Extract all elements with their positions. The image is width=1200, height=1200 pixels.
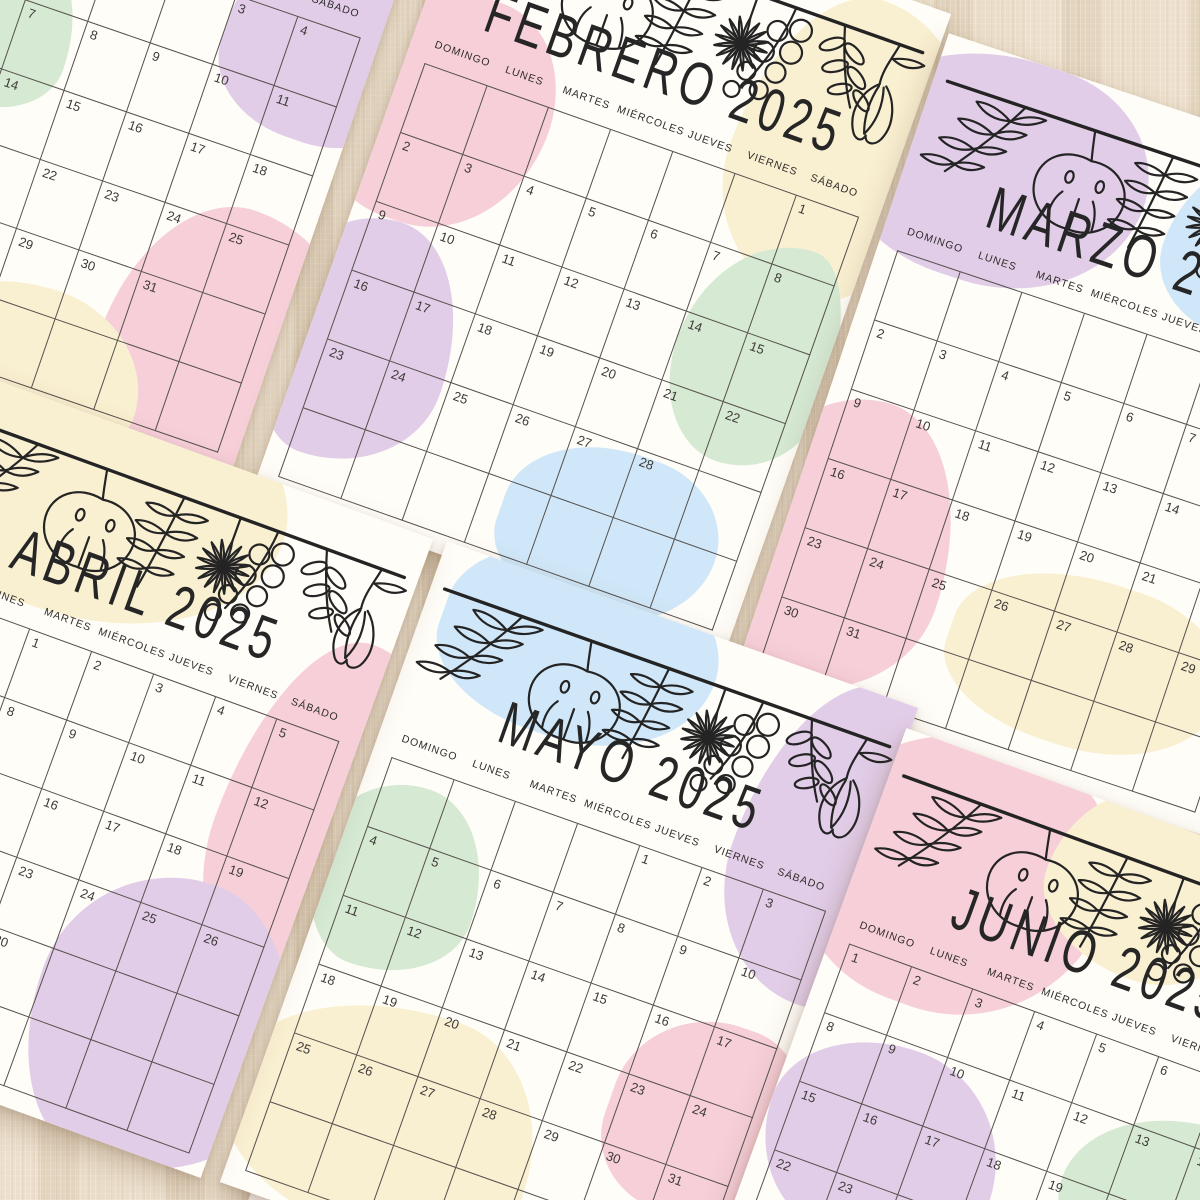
day-number: 30 [0, 931, 10, 950]
day-number: 31 [141, 277, 160, 296]
day-number: 16 [126, 117, 145, 136]
day-number: 4 [367, 832, 379, 849]
day-number: 10 [914, 415, 932, 434]
day-number: 19 [538, 341, 557, 360]
day-number: 13 [1101, 478, 1119, 497]
day-number: 8 [824, 1018, 836, 1035]
day-number: 23 [17, 863, 36, 882]
day-number: 21 [505, 1035, 524, 1054]
day-number: 26 [202, 930, 221, 949]
day-number: 25 [451, 388, 470, 407]
day-number: 29 [1179, 658, 1197, 677]
day-number: 12 [405, 923, 424, 942]
day-number: 26 [513, 410, 532, 429]
day-number: 17 [891, 485, 909, 504]
day-number: 11 [976, 436, 994, 455]
day-number: 21 [1140, 568, 1158, 587]
day-number: 28 [480, 1104, 499, 1123]
day-number: 3 [462, 160, 474, 177]
day-number: 16 [42, 794, 61, 813]
day-number: 18 [476, 319, 495, 338]
day-number: 3 [764, 895, 776, 912]
day-number: 10 [739, 964, 758, 983]
day-number: 13 [624, 294, 643, 313]
day-number: 11 [1010, 1086, 1028, 1105]
day-number: 5 [1096, 1040, 1108, 1057]
day-number: 16 [861, 1109, 880, 1128]
day-number: 4 [298, 22, 310, 39]
day-number: 23 [628, 1079, 647, 1098]
day-number: 10 [212, 70, 231, 89]
day-number: 22 [567, 1057, 586, 1076]
calendar-mockup-scene: ENERO 2025 DOMINGOLUNESMARTESMIÉRCOLESJU… [0, 0, 1200, 1200]
day-number: 1 [849, 950, 861, 967]
day-number: 5 [277, 724, 289, 741]
day-number: 11 [500, 251, 518, 270]
day-number: 4 [1035, 1017, 1047, 1034]
day-number: 19 [227, 862, 246, 881]
day-number: 10 [438, 229, 457, 248]
day-number: 9 [150, 48, 162, 65]
day-number: 12 [562, 273, 581, 292]
day-number: 16 [828, 464, 846, 483]
day-number: 11 [274, 91, 292, 110]
day-number: 9 [376, 207, 388, 224]
day-number: 25 [294, 1038, 313, 1057]
day-number: 13 [1133, 1131, 1152, 1150]
day-number: 26 [356, 1060, 375, 1079]
day-number: 10 [948, 1063, 967, 1082]
day-number: 18 [165, 839, 184, 858]
day-number: 1 [797, 201, 809, 218]
day-number: 17 [103, 817, 122, 836]
day-number: 1 [30, 635, 42, 652]
day-number: 14 [1163, 499, 1181, 518]
day-number: 24 [389, 366, 408, 385]
day-number: 2 [875, 325, 887, 342]
day-number: 17 [923, 1132, 942, 1151]
day-number: 15 [64, 96, 83, 115]
day-number: 11 [190, 771, 208, 790]
day-number: 25 [227, 229, 246, 248]
day-number: 27 [418, 1082, 437, 1101]
day-number: 30 [604, 1148, 623, 1167]
day-number: 8 [772, 270, 784, 287]
day-number: 3 [937, 346, 949, 363]
day-number: 14 [529, 967, 548, 986]
day-number: 15 [591, 988, 610, 1007]
day-number: 7 [1186, 430, 1198, 447]
day-number: 21 [661, 385, 680, 404]
day-number: 23 [327, 344, 346, 363]
day-number: 1 [640, 851, 652, 868]
day-number: 19 [1046, 1177, 1065, 1196]
day-number: 20 [600, 363, 619, 382]
day-number: 6 [1124, 409, 1136, 426]
day-number: 15 [748, 338, 767, 357]
day-number: 3 [153, 680, 165, 697]
day-number: 20 [1078, 547, 1096, 566]
day-number: 30 [782, 602, 800, 621]
day-number: 18 [251, 160, 270, 179]
day-number: 7 [553, 898, 565, 915]
day-number: 9 [67, 726, 79, 743]
day-number: 9 [852, 395, 864, 412]
day-number: 19 [1015, 526, 1033, 545]
day-number: 25 [140, 908, 159, 927]
day-number: 24 [868, 554, 886, 573]
day-number: 25 [930, 575, 948, 594]
day-number: 31 [666, 1170, 685, 1189]
day-number: 4 [999, 367, 1011, 384]
day-number: 23 [805, 533, 823, 552]
day-number: 15 [799, 1087, 818, 1106]
day-number: 16 [653, 1010, 672, 1029]
day-number: 22 [40, 165, 59, 184]
day-number: 10 [128, 748, 147, 767]
day-number: 8 [88, 27, 100, 44]
day-number: 28 [1117, 637, 1135, 656]
day-number: 22 [774, 1155, 793, 1174]
day-number: 29 [17, 234, 36, 253]
day-number: 24 [78, 885, 97, 904]
day-number: 6 [1158, 1062, 1170, 1079]
day-number: 18 [985, 1154, 1004, 1173]
day-number: 2 [92, 657, 104, 674]
day-number: 8 [5, 703, 17, 720]
day-number: 4 [215, 702, 227, 719]
day-number: 17 [189, 139, 208, 158]
day-number: 19 [381, 991, 400, 1010]
day-number: 18 [953, 506, 971, 525]
day-number: 12 [1071, 1108, 1090, 1127]
day-number: 24 [690, 1101, 709, 1120]
day-number: 4 [524, 182, 536, 199]
day-number: 6 [491, 876, 503, 893]
day-number: 14 [686, 316, 705, 335]
day-number: 13 [467, 945, 486, 964]
day-number: 23 [103, 186, 122, 205]
day-number: 29 [542, 1126, 561, 1145]
day-number: 18 [319, 970, 338, 989]
day-number: 3 [973, 995, 985, 1012]
day-number: 20 [443, 1013, 462, 1032]
day-number: 11 [343, 901, 361, 920]
day-number: 3 [236, 1, 248, 18]
day-number: 5 [429, 854, 441, 871]
pastel-blobs [949, 33, 1200, 192]
day-number: 17 [414, 297, 433, 316]
day-number: 27 [575, 432, 594, 451]
day-number: 27 [1055, 616, 1073, 635]
day-number: 7 [710, 248, 722, 265]
day-number: 9 [677, 942, 689, 959]
day-number: 17 [715, 1032, 734, 1051]
day-number: 6 [648, 226, 660, 243]
day-number: 5 [586, 204, 598, 221]
day-number: 28 [637, 454, 656, 473]
day-number: 14 [2, 74, 21, 93]
day-number: 23 [836, 1178, 855, 1197]
day-number: 12 [1039, 457, 1057, 476]
day-number: 2 [702, 873, 714, 890]
day-number: 8 [615, 920, 627, 937]
day-number: 2 [911, 972, 923, 989]
day-number: 16 [352, 276, 371, 295]
day-number: 9 [886, 1041, 898, 1058]
day-number: 5 [1062, 388, 1074, 405]
day-number: 24 [165, 208, 184, 227]
day-number: 12 [252, 793, 271, 812]
day-number: 7 [26, 5, 38, 22]
day-number: 30 [79, 255, 98, 274]
day-number: 26 [992, 596, 1010, 615]
day-number: 31 [844, 623, 862, 642]
day-number: 14 [1195, 1153, 1200, 1172]
day-number: 22 [723, 407, 742, 426]
day-number: 2 [400, 138, 412, 155]
